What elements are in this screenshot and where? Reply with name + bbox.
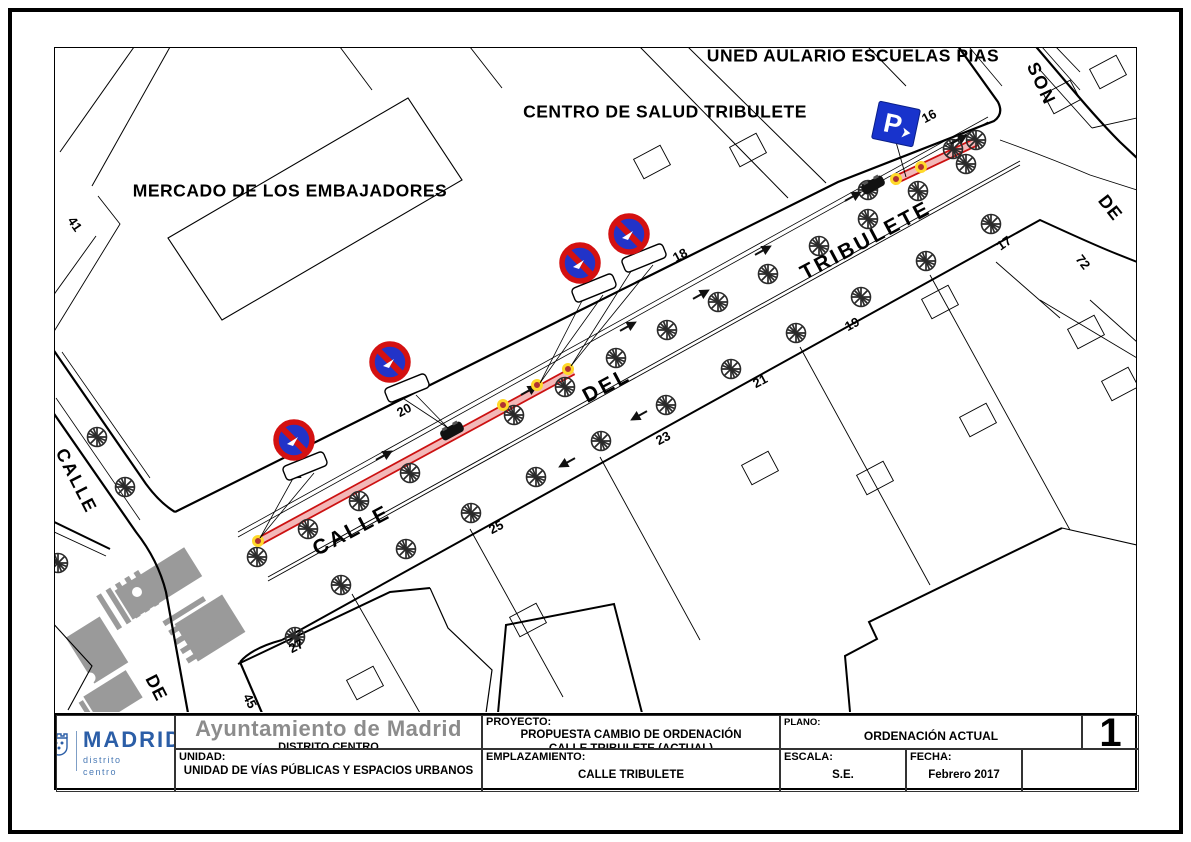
project-label: PROYECTO: <box>483 716 779 728</box>
org-cell: Ayuntamiento de Madrid DISTRITO CENTRO <box>175 715 482 749</box>
title-block: MADRID distrito centro Ayuntamiento de M… <box>54 713 1137 790</box>
unit-label: UNIDAD: <box>176 750 481 764</box>
logo-sub1: distrito <box>83 755 175 766</box>
scale-value: S.E. <box>781 768 905 782</box>
empty-cell <box>1022 749 1139 792</box>
location-value: CALLE TRIBULETE <box>483 768 779 782</box>
logo-divider <box>76 731 77 771</box>
unit-cell: UNIDAD: UNIDAD DE VÍAS PÚBLICAS Y ESPACI… <box>175 749 482 792</box>
plan-value: ORDENACIÓN ACTUAL <box>781 729 1081 744</box>
project-line1: PROPUESTA CAMBIO DE ORDENACIÓN <box>483 728 779 742</box>
sheet-number: 1 <box>1083 716 1138 749</box>
logo-brand: MADRID <box>83 729 175 751</box>
plan-sheet: P UNED AULARIO ESCUELAS PIASCENTRO DE SA… <box>0 0 1191 842</box>
logo-sub2: centro <box>83 767 175 778</box>
date-cell: FECHA: Febrero 2017 <box>906 749 1022 792</box>
org-name: Ayuntamiento de Madrid <box>176 718 481 740</box>
drawing-frame <box>54 47 1137 790</box>
plan-label: PLANO: <box>781 716 1081 729</box>
sheet-number-cell: 1 <box>1082 715 1139 749</box>
location-label: EMPLAZAMIENTO: <box>483 750 779 764</box>
plan-cell: PLANO: ORDENACIÓN ACTUAL <box>780 715 1082 749</box>
date-label: FECHA: <box>907 750 1021 764</box>
scale-cell: ESCALA: S.E. <box>780 749 906 792</box>
scale-label: ESCALA: <box>781 750 905 764</box>
unit-value: UNIDAD DE VÍAS PÚBLICAS Y ESPACIOS URBAN… <box>176 764 481 778</box>
madrid-crest-icon <box>56 729 70 757</box>
date-value: Febrero 2017 <box>907 768 1021 782</box>
org-district: DISTRITO CENTRO <box>176 741 481 749</box>
project-line2: CALLE TRIBULETE (ACTUAL) <box>483 742 779 749</box>
madrid-logo: MADRID distrito centro <box>56 715 175 792</box>
location-cell: EMPLAZAMIENTO: CALLE TRIBULETE <box>482 749 780 792</box>
project-cell: PROYECTO: PROPUESTA CAMBIO DE ORDENACIÓN… <box>482 715 780 749</box>
